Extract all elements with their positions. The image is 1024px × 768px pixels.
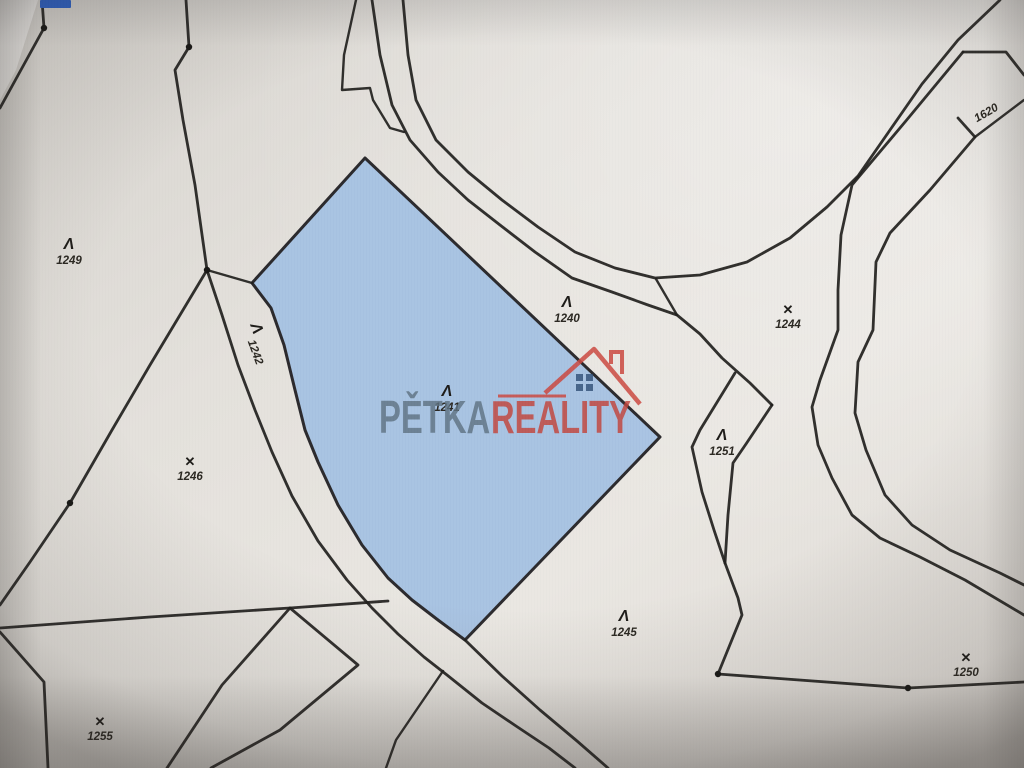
vertex-dot (204, 267, 210, 273)
vertex-dot (715, 671, 721, 677)
parcel-number: 1250 (953, 667, 979, 679)
grassland-symbol-icon: Λ (716, 427, 728, 444)
orchard-symbol-icon: ✕ (961, 650, 972, 665)
cadastral-map-screenshot: Λ 1249 Λ 1242 Λ 1240 ✕ 1244 1620 Λ 1241 (0, 0, 1024, 768)
grassland-symbol-icon: Λ (63, 236, 75, 253)
orchard-symbol-icon: ✕ (783, 302, 794, 317)
parcel-number: 1245 (611, 627, 637, 639)
parcel-number: 1246 (177, 471, 203, 483)
parcel-number: 1249 (56, 255, 82, 267)
parcel-number: 1244 (775, 319, 801, 331)
parcel-number: 1251 (709, 446, 735, 458)
vertex-dot (67, 500, 73, 506)
grassland-symbol-icon: Λ (561, 294, 573, 311)
watermark-part2: REALITY (491, 391, 631, 443)
vertex-dot (41, 25, 47, 31)
orchard-symbol-icon: ✕ (185, 454, 196, 469)
vertex-dot (905, 685, 911, 691)
watermark-wordmark: PĚTKA REALITY (379, 391, 631, 443)
ui-chip (40, 0, 71, 8)
grassland-symbol-icon: Λ (618, 608, 630, 625)
vertex-dot (186, 44, 192, 50)
parcel-number: 1240 (554, 313, 580, 325)
map-canvas[interactable]: Λ 1249 Λ 1242 Λ 1240 ✕ 1244 1620 Λ 1241 (0, 0, 1024, 768)
orchard-symbol-icon: ✕ (95, 714, 106, 729)
parcel-number: 1255 (87, 731, 113, 743)
watermark-part1: PĚTKA (379, 391, 489, 443)
